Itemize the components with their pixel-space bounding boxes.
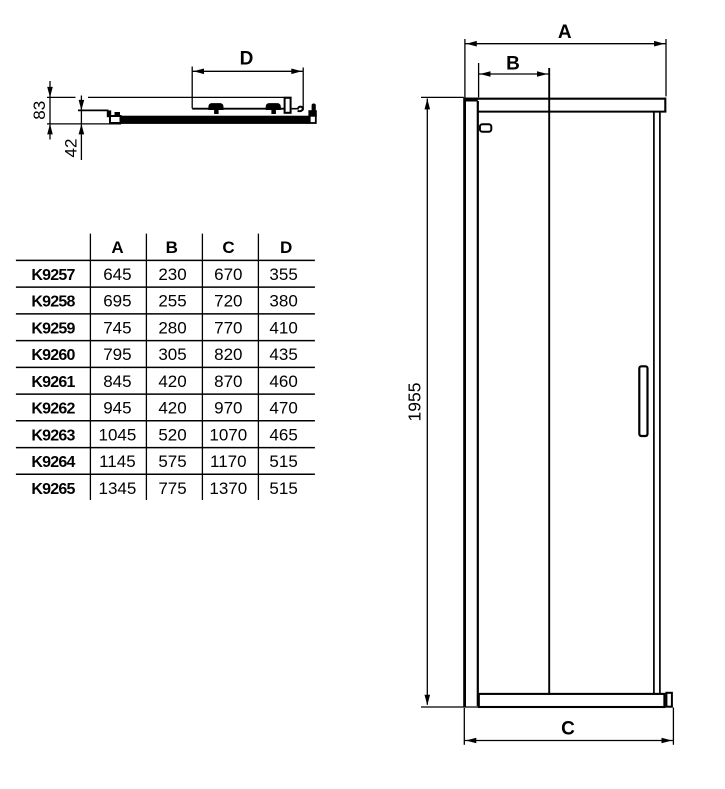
svg-text:410: 410: [269, 319, 297, 338]
svg-text:435: 435: [269, 345, 297, 364]
svg-text:K9262: K9262: [31, 401, 75, 418]
svg-text:460: 460: [269, 372, 297, 391]
svg-text:K9258: K9258: [31, 294, 75, 311]
svg-text:770: 770: [214, 319, 242, 338]
svg-text:B: B: [506, 53, 520, 74]
svg-text:280: 280: [158, 319, 186, 338]
svg-text:515: 515: [269, 479, 297, 498]
svg-text:420: 420: [158, 399, 186, 418]
svg-text:D: D: [280, 238, 292, 257]
svg-text:1145: 1145: [99, 452, 136, 471]
svg-text:K9260: K9260: [31, 347, 75, 364]
svg-text:945: 945: [103, 399, 131, 418]
svg-text:380: 380: [269, 292, 297, 311]
svg-text:D: D: [240, 49, 254, 70]
svg-text:K9265: K9265: [31, 481, 75, 498]
svg-text:K9264: K9264: [31, 454, 75, 471]
svg-text:465: 465: [269, 425, 297, 444]
svg-text:K9263: K9263: [31, 427, 75, 444]
svg-text:C: C: [222, 238, 234, 257]
svg-text:970: 970: [214, 399, 242, 418]
svg-text:230: 230: [158, 265, 186, 284]
svg-text:A: A: [111, 238, 123, 257]
svg-text:745: 745: [103, 319, 131, 338]
svg-text:1345: 1345: [98, 479, 136, 498]
svg-text:720: 720: [214, 292, 242, 311]
svg-text:B: B: [166, 238, 178, 257]
svg-text:K9261: K9261: [31, 374, 75, 391]
svg-text:420: 420: [158, 372, 186, 391]
svg-text:645: 645: [103, 265, 131, 284]
svg-text:775: 775: [158, 479, 186, 498]
svg-text:355: 355: [269, 265, 297, 284]
svg-text:820: 820: [214, 345, 242, 364]
svg-text:C: C: [561, 719, 575, 740]
svg-text:845: 845: [103, 372, 131, 391]
svg-text:255: 255: [158, 292, 186, 311]
svg-text:1370: 1370: [209, 479, 247, 498]
svg-text:515: 515: [269, 452, 297, 471]
svg-text:A: A: [558, 22, 572, 43]
svg-text:1170: 1170: [210, 452, 247, 471]
svg-text:695: 695: [103, 292, 131, 311]
svg-text:1045: 1045: [98, 425, 136, 444]
svg-text:870: 870: [214, 372, 242, 391]
svg-text:42: 42: [62, 139, 81, 158]
svg-text:670: 670: [214, 265, 242, 284]
svg-text:795: 795: [103, 345, 131, 364]
svg-text:305: 305: [158, 345, 186, 364]
svg-text:1070: 1070: [209, 425, 247, 444]
svg-text:K9257: K9257: [31, 267, 75, 284]
svg-text:K9259: K9259: [31, 321, 75, 338]
svg-text:470: 470: [269, 399, 297, 418]
svg-text:575: 575: [158, 452, 186, 471]
svg-text:520: 520: [158, 425, 186, 444]
svg-text:1955: 1955: [404, 383, 424, 422]
svg-text:83: 83: [30, 101, 49, 120]
